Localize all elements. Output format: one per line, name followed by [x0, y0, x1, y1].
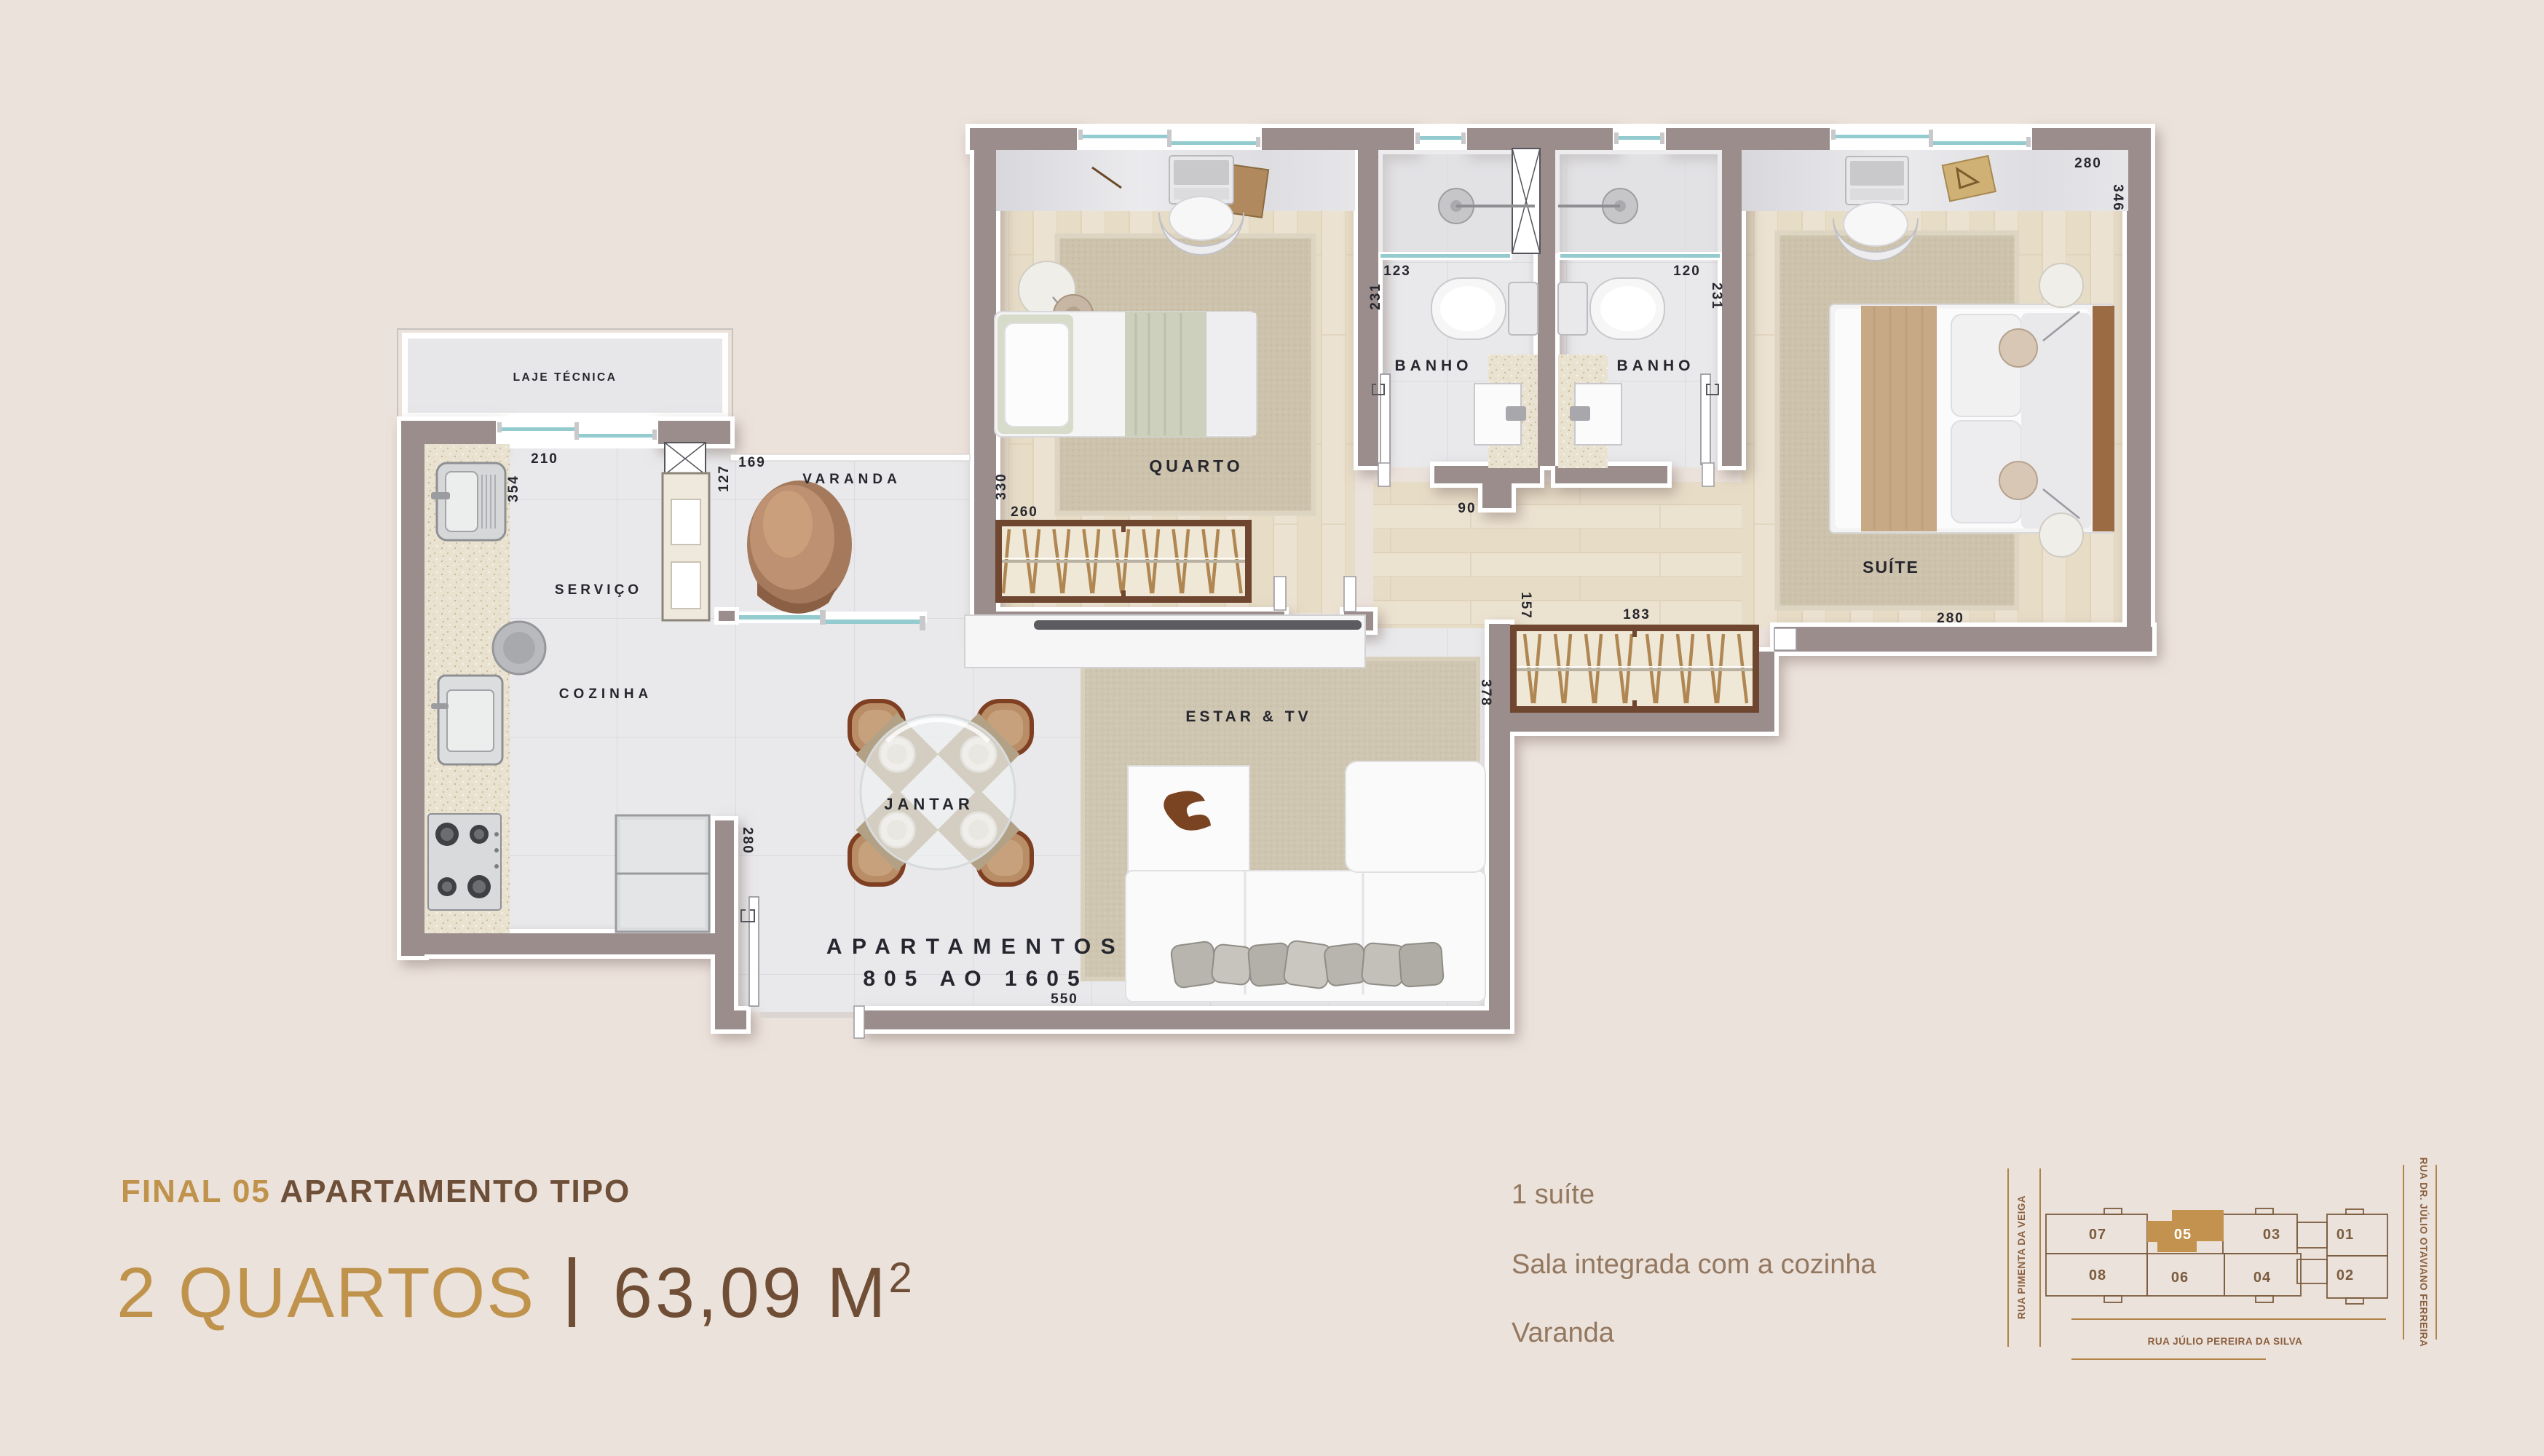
svg-text:123: 123	[1383, 264, 1411, 279]
svg-text:231: 231	[1368, 282, 1383, 310]
svg-text:280: 280	[2074, 156, 2102, 171]
svg-text:BANHO: BANHO	[1617, 357, 1695, 374]
svg-text:QUARTO: QUARTO	[1149, 456, 1243, 475]
svg-text:02: 02	[2336, 1267, 2354, 1283]
svg-text:169: 169	[738, 455, 766, 470]
svg-text:378: 378	[1478, 679, 1493, 707]
svg-text:RUA JÚLIO PEREIRA DA SILVA: RUA JÚLIO PEREIRA DA SILVA	[2148, 1336, 2303, 1347]
svg-text:183: 183	[1623, 607, 1651, 622]
svg-text:260: 260	[1011, 505, 1038, 520]
svg-text:FINAL 05 APARTAMENTO TIPO: FINAL 05 APARTAMENTO TIPO	[121, 1174, 631, 1209]
svg-text:231: 231	[1709, 282, 1724, 310]
svg-text:RUA DR. JÚLIO OTAVIANO FERREIR: RUA DR. JÚLIO OTAVIANO FERREIRA	[2418, 1158, 2429, 1348]
svg-text:805 AO 1605: 805 AO 1605	[863, 967, 1088, 991]
svg-text:2 QUARTOS: 2 QUARTOS	[116, 1253, 535, 1332]
svg-text:127: 127	[716, 464, 732, 492]
svg-text:01: 01	[2336, 1227, 2354, 1243]
svg-text:RUA PIMENTA DA VEIGA: RUA PIMENTA DA VEIGA	[2016, 1195, 2027, 1319]
svg-text:JANTAR: JANTAR	[884, 795, 974, 813]
svg-text:08: 08	[2089, 1267, 2106, 1283]
svg-text:LAJE TÉCNICA: LAJE TÉCNICA	[513, 371, 617, 384]
svg-text:07: 07	[2089, 1227, 2106, 1243]
svg-text:354: 354	[506, 475, 521, 502]
svg-text:280: 280	[1937, 611, 1964, 626]
svg-text:157: 157	[1518, 592, 1533, 620]
svg-text:03: 03	[2263, 1227, 2280, 1243]
svg-text:1 suíte: 1 suíte	[1512, 1179, 1595, 1210]
svg-text:Varanda: Varanda	[1512, 1318, 1615, 1348]
svg-text:346: 346	[2110, 184, 2125, 212]
svg-text:SUÍTE: SUÍTE	[1862, 557, 1919, 577]
svg-text:330: 330	[994, 472, 1009, 500]
svg-text:SERVIÇO: SERVIÇO	[555, 582, 642, 598]
svg-text:550: 550	[1051, 992, 1078, 1007]
svg-text:210: 210	[531, 451, 558, 467]
svg-text:120: 120	[1673, 264, 1701, 279]
svg-text:Sala integrada com a cozinha: Sala integrada com a cozinha	[1512, 1249, 1877, 1280]
svg-text:COZINHA: COZINHA	[559, 687, 653, 702]
svg-text:90: 90	[1458, 501, 1476, 516]
svg-text:280: 280	[740, 827, 755, 855]
svg-text:06: 06	[2171, 1270, 2189, 1286]
svg-text:BANHO: BANHO	[1395, 357, 1473, 374]
svg-text:APARTAMENTOS: APARTAMENTOS	[826, 935, 1125, 959]
svg-text:04: 04	[2253, 1270, 2271, 1286]
svg-text:VARANDA: VARANDA	[802, 472, 901, 487]
svg-text:63,09 M2: 63,09 M2	[613, 1253, 915, 1332]
svg-text:05: 05	[2174, 1227, 2192, 1243]
svg-text:ESTAR & TV: ESTAR & TV	[1185, 708, 1311, 725]
